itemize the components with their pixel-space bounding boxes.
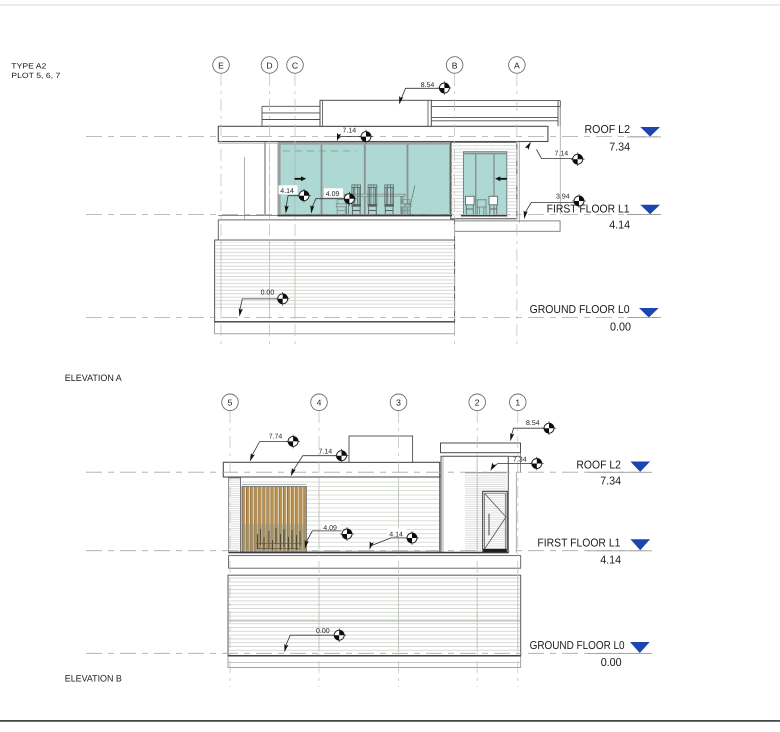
svg-text:ELEVATION B: ELEVATION B (65, 673, 122, 683)
svg-text:FIRST FLOOR L1: FIRST FLOOR L1 (537, 537, 620, 549)
svg-text:7.34: 7.34 (609, 141, 631, 153)
svg-text:D: D (266, 60, 272, 70)
svg-text:2: 2 (475, 398, 480, 408)
svg-text:7.14: 7.14 (319, 449, 333, 456)
svg-text:0.00: 0.00 (316, 628, 330, 635)
svg-text:7.74: 7.74 (269, 434, 283, 441)
svg-text:5: 5 (228, 398, 233, 408)
svg-text:A: A (514, 60, 520, 70)
svg-text:B: B (452, 60, 458, 70)
svg-text:4.14: 4.14 (609, 219, 631, 231)
svg-text:0.00: 0.00 (601, 657, 622, 669)
svg-text:GROUND FLOOR L0: GROUND FLOOR L0 (530, 640, 625, 652)
svg-text:7.14: 7.14 (555, 150, 569, 157)
svg-text:7.34: 7.34 (513, 456, 527, 463)
svg-text:ELEVATION A: ELEVATION A (65, 373, 123, 383)
svg-text:7.34: 7.34 (600, 476, 622, 488)
svg-text:4.14: 4.14 (600, 555, 622, 567)
svg-text:4.14: 4.14 (389, 531, 403, 538)
svg-text:ROOF L2: ROOF L2 (585, 124, 631, 136)
svg-text:ROOF L2: ROOF L2 (576, 460, 621, 472)
svg-text:C: C (292, 60, 298, 70)
svg-text:TYPE A2: TYPE A2 (11, 61, 46, 70)
svg-text:FIRST FLOOR L1: FIRST FLOOR L1 (547, 203, 630, 215)
svg-text:0.00: 0.00 (261, 290, 275, 297)
svg-text:7.14: 7.14 (343, 128, 357, 135)
svg-text:3: 3 (396, 398, 401, 408)
svg-text:3.94: 3.94 (556, 194, 570, 201)
svg-text:8.54: 8.54 (526, 420, 540, 427)
svg-text:1: 1 (515, 398, 520, 408)
svg-text:E: E (218, 60, 224, 70)
svg-text:4.14: 4.14 (280, 188, 294, 195)
svg-text:GROUND FLOOR L0: GROUND FLOOR L0 (530, 304, 630, 316)
svg-text:4.09: 4.09 (326, 191, 340, 198)
svg-text:0.00: 0.00 (610, 322, 631, 334)
svg-text:4: 4 (317, 398, 322, 408)
svg-text:PLOT 5, 6, 7: PLOT 5, 6, 7 (11, 71, 60, 80)
